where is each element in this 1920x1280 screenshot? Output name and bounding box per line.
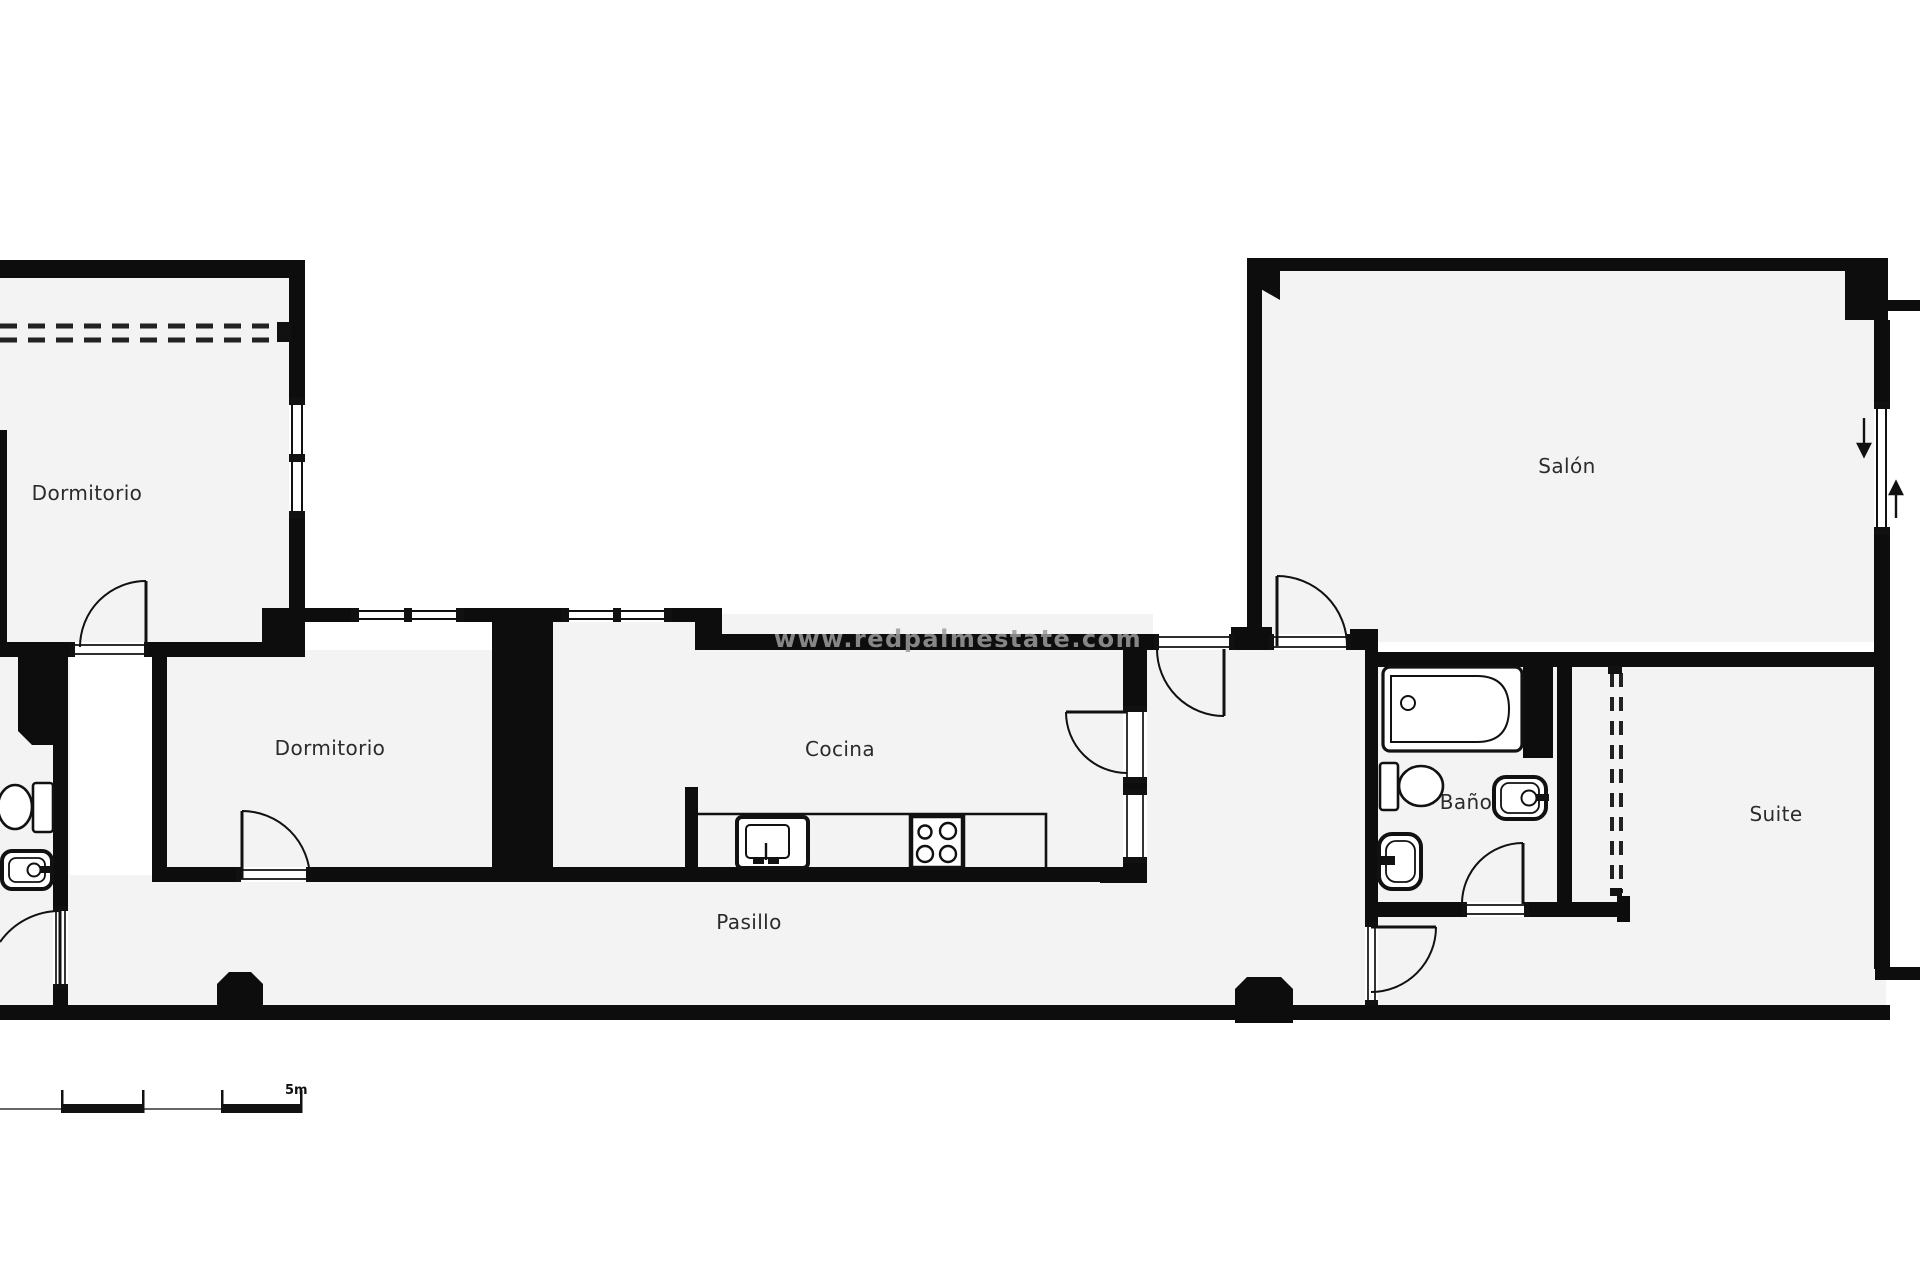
pillar [217,972,263,1020]
scale-bar [0,1090,303,1113]
bathtub-icon [1383,667,1522,751]
floor-pasillo [40,875,1140,1015]
room-label-pasillo: Pasillo [716,910,782,934]
toilet-icon [1380,763,1443,810]
pillar [1235,977,1293,1023]
stove-icon [911,816,963,868]
scale-bar-label: 5m [285,1083,308,1098]
floor-plan: Dormitorio Dormitorio Cocina Pasillo Sal… [0,0,1920,1280]
arrow-up-icon [1890,482,1902,518]
window-icon [289,397,305,519]
window-icon [1874,401,1890,535]
room-label-suite: Suite [1749,802,1802,826]
floor-hall [1128,645,1378,1013]
room-label-cocina: Cocina [805,737,875,761]
kitchen-sink-icon [737,817,808,868]
room-label-bano: Baño [1440,790,1493,814]
floor-salon [1250,264,1886,642]
bidet-icon [1379,834,1421,889]
washbasin-icon [2,851,52,889]
room-label-dormitorio-2: Dormitorio [275,736,386,760]
toilet-icon [0,783,53,832]
room-label-salon: Salón [1538,454,1595,478]
window-icon [561,608,672,622]
washbasin-icon [1494,777,1549,819]
room-label-dormitorio-1: Dormitorio [32,481,143,505]
watermark: www.redpalmestate.com [774,625,1142,653]
window-icon [351,608,464,622]
